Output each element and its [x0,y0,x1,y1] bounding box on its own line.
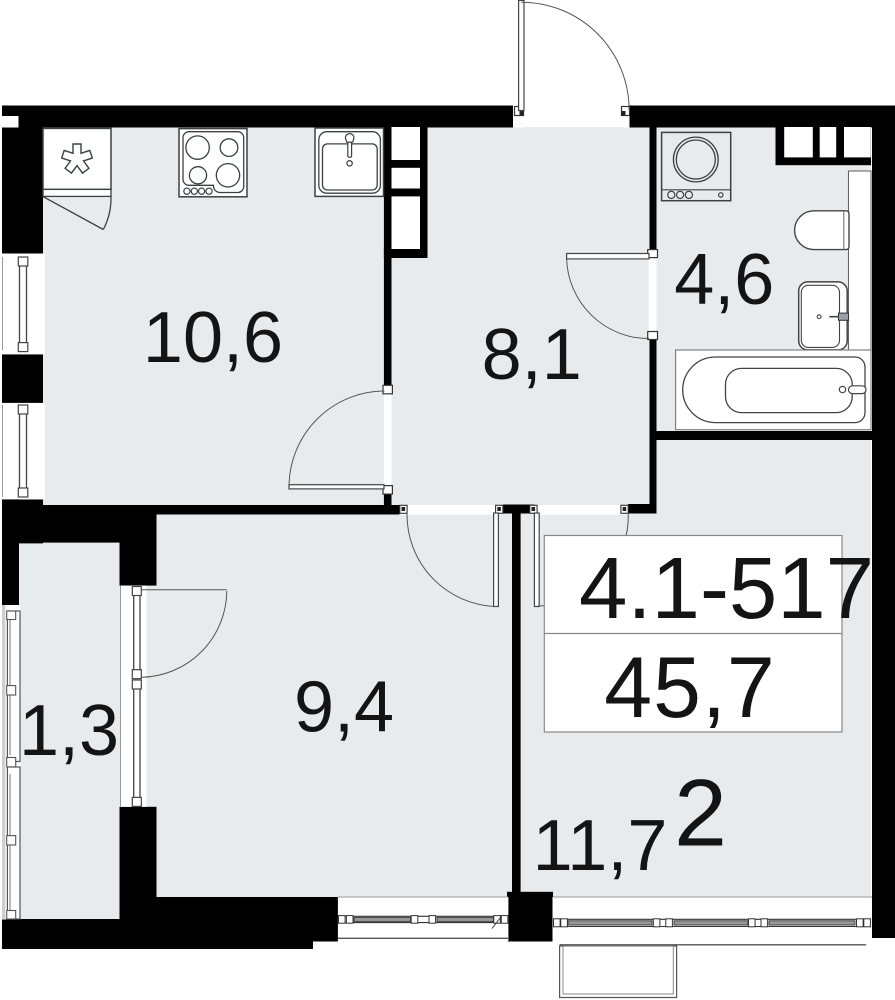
svg-text:1,3: 1,3 [19,691,119,771]
svg-text:10,6: 10,6 [143,298,283,378]
svg-text:2: 2 [674,761,727,867]
svg-text:11,7: 11,7 [533,806,668,886]
svg-text:4.1-517: 4.1-517 [579,540,874,637]
svg-text:45,7: 45,7 [604,640,775,736]
svg-text:9,4: 9,4 [294,668,394,748]
svg-text:8,1: 8,1 [482,315,582,395]
svg-text:4,6: 4,6 [674,240,774,320]
